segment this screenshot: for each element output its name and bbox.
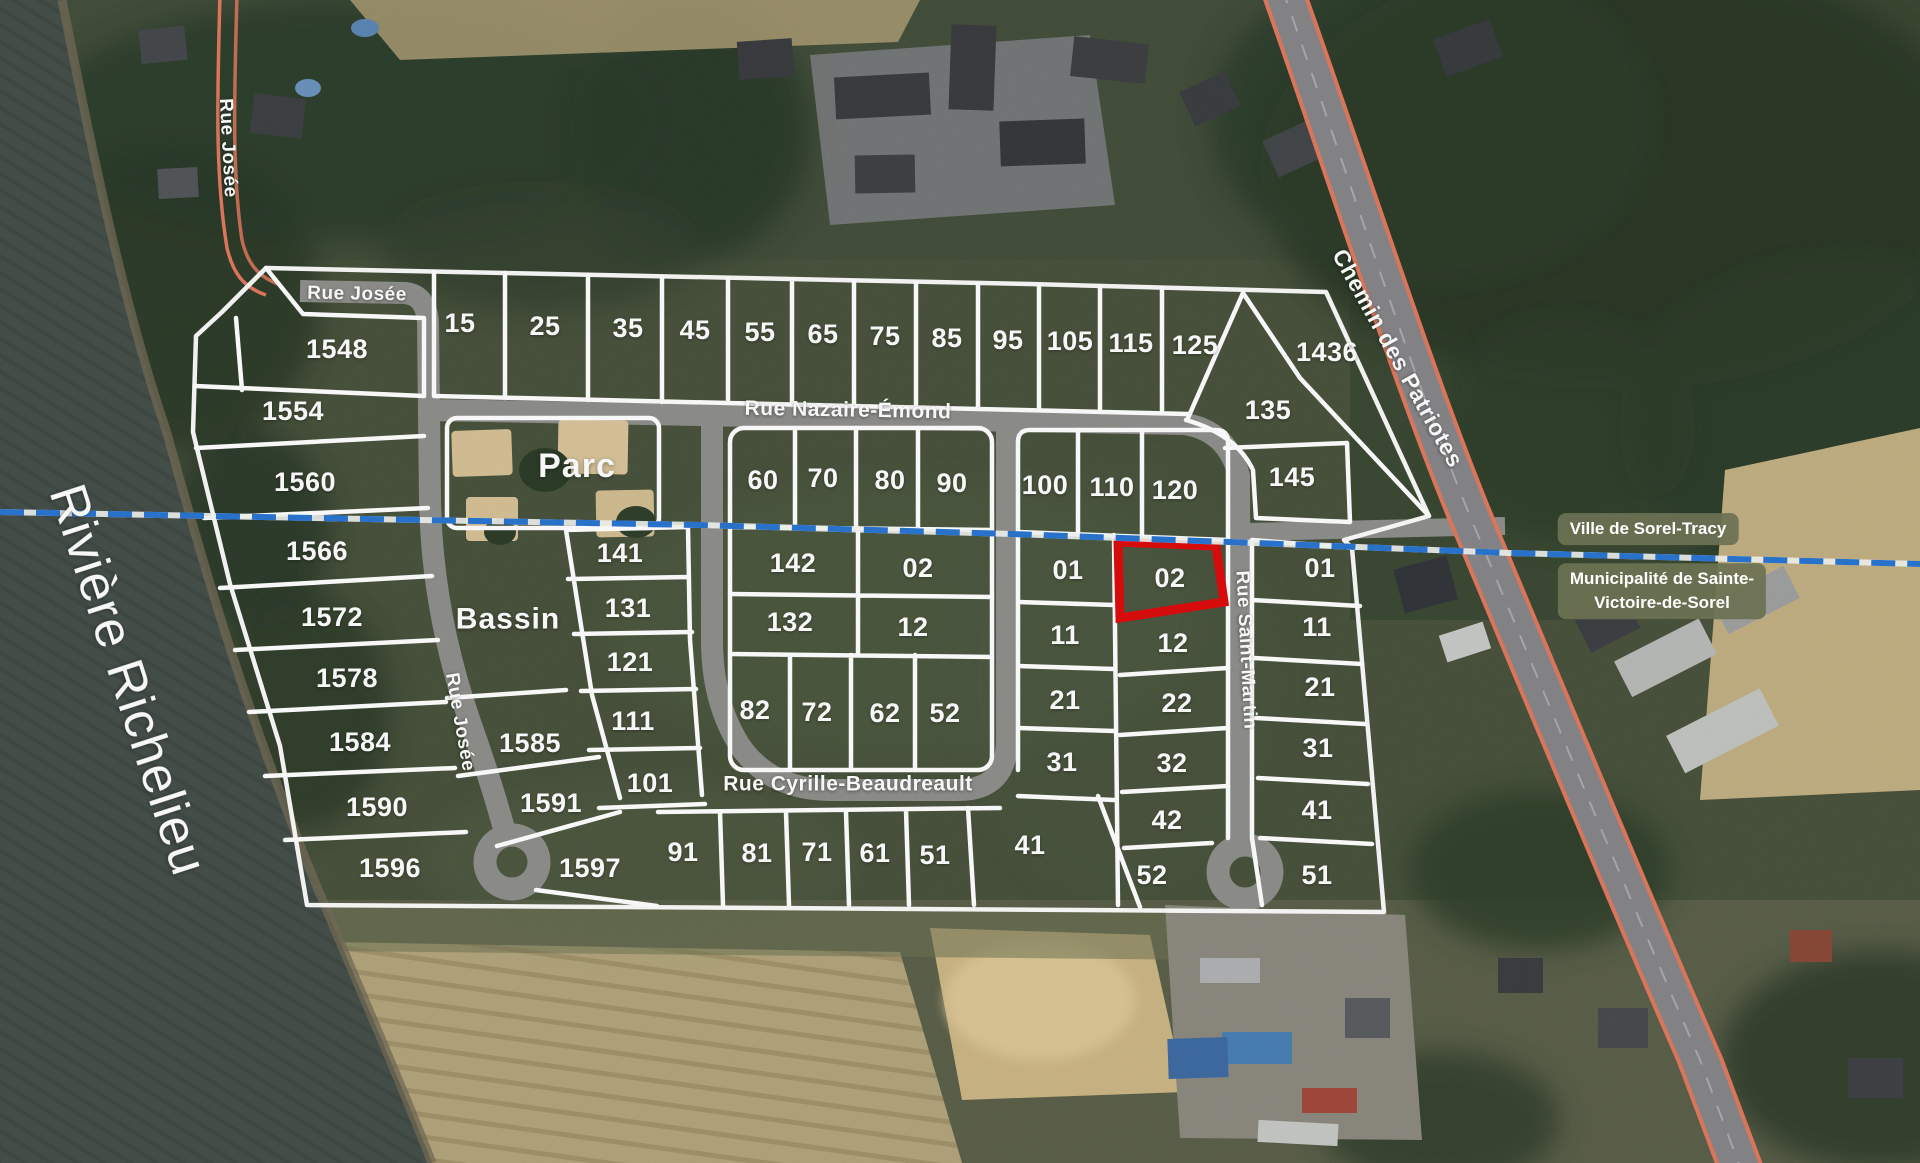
lot-number-35: 35 [612,313,643,343]
lot-number-141: 141 [597,538,644,568]
lot-number-51: 51 [1301,860,1332,890]
lot-number-42: 42 [1151,805,1182,835]
lot-number-45: 45 [679,315,710,345]
lot-number-1554: 1554 [262,396,324,426]
lot-number-100: 100 [1022,470,1069,500]
lot-number-101: 101 [627,768,674,798]
lot-number-1560: 1560 [274,467,336,497]
lot-number-61: 61 [859,838,890,868]
lot-number-1596: 1596 [359,853,421,883]
lot-number-01: 01 [1304,553,1335,583]
lot-number-82: 82 [739,695,770,725]
municipality-badge-sorel-tracy: Ville de Sorel-Tracy [1558,513,1739,545]
lot-number-71: 71 [801,837,832,867]
lot-number-51: 51 [919,840,950,870]
lot-number-1436: 1436 [1296,337,1358,367]
lot-number-22: 22 [1161,688,1192,718]
lot-number-25: 25 [529,311,560,341]
lot-number-52: 52 [929,698,960,728]
lot-number-145: 145 [1269,462,1316,492]
lot-number-81: 81 [741,838,772,868]
lot-number-21: 21 [1049,685,1080,715]
lot-number-72: 72 [801,697,832,727]
lot-number-32: 32 [1156,748,1187,778]
lot-number-110: 110 [1089,472,1134,502]
lot-number-125: 125 [1172,330,1219,360]
lot-number-1585: 1585 [499,728,561,758]
lot-number-1548: 1548 [306,334,368,364]
lot-number-31: 31 [1302,733,1333,763]
street-label-rue-nazaire-mond: Rue Nazaire-Émond [744,397,951,424]
lot-number-12: 12 [897,612,928,642]
lot-number-91: 91 [667,837,698,867]
region-label-parc: Parc [538,447,616,485]
lot-number-95: 95 [992,325,1023,355]
lot-number-1597: 1597 [559,853,621,883]
region-label-bassin: Bassin [456,603,560,636]
lot-number-1578: 1578 [316,663,378,693]
lot-number-121: 121 [607,647,654,677]
lot-number-02: 02 [1154,563,1185,593]
lot-number-115: 115 [1108,328,1153,358]
lot-number-02: 02 [902,553,933,583]
lot-number-132: 132 [767,607,814,637]
lot-number-105: 105 [1047,326,1094,356]
lot-number-142: 142 [770,548,817,578]
lot-number-15: 15 [444,308,475,338]
lot-number-11: 11 [1302,612,1332,642]
lot-number-111: 111 [611,706,655,736]
lot-number-21: 21 [1304,672,1335,702]
lot-number-01: 01 [1052,555,1083,585]
lot-number-41: 41 [1014,830,1045,860]
municipality-badge-sainte-victoire: Municipalité de Sainte- Victoire-de-Sore… [1558,563,1766,619]
lot-number-41: 41 [1301,795,1332,825]
lot-number-75: 75 [869,321,900,351]
lot-number-131: 131 [605,593,652,623]
street-label-rue-cyrille-beaudreault: Rue Cyrille-Beaudreault [723,773,973,796]
lot-number-52: 52 [1136,860,1167,890]
badge-line: Ville de Sorel-Tracy [1570,517,1727,541]
lot-number-1572: 1572 [301,602,363,632]
lot-number-1566: 1566 [286,536,348,566]
lot-number-90: 90 [936,468,967,498]
lot-number-55: 55 [744,317,775,347]
lot-number-65: 65 [807,319,838,349]
badge-line: Municipalité de Sainte- [1570,567,1754,591]
street-label-rue-jos-e: Rue Josée [307,283,407,306]
lot-number-31: 31 [1046,747,1077,777]
lot-number-12: 12 [1157,628,1188,658]
lot-number-70: 70 [807,463,838,493]
lot-number-135: 135 [1245,395,1292,425]
lot-number-11: 11 [1050,620,1080,650]
lot-number-80: 80 [874,465,905,495]
lot-number-62: 62 [869,698,900,728]
lot-number-1591: 1591 [520,788,582,818]
badge-line: Victoire-de-Sorel [1570,591,1754,615]
lot-number-1590: 1590 [346,792,408,822]
lot-number-85: 85 [931,323,962,353]
lot-number-120: 120 [1152,475,1199,505]
lot-number-60: 60 [747,465,778,495]
satellite-plat-map: Rivière RichelieuParcBassin Rue JoséeRue… [0,0,1920,1163]
lot-number-1584: 1584 [329,727,391,757]
